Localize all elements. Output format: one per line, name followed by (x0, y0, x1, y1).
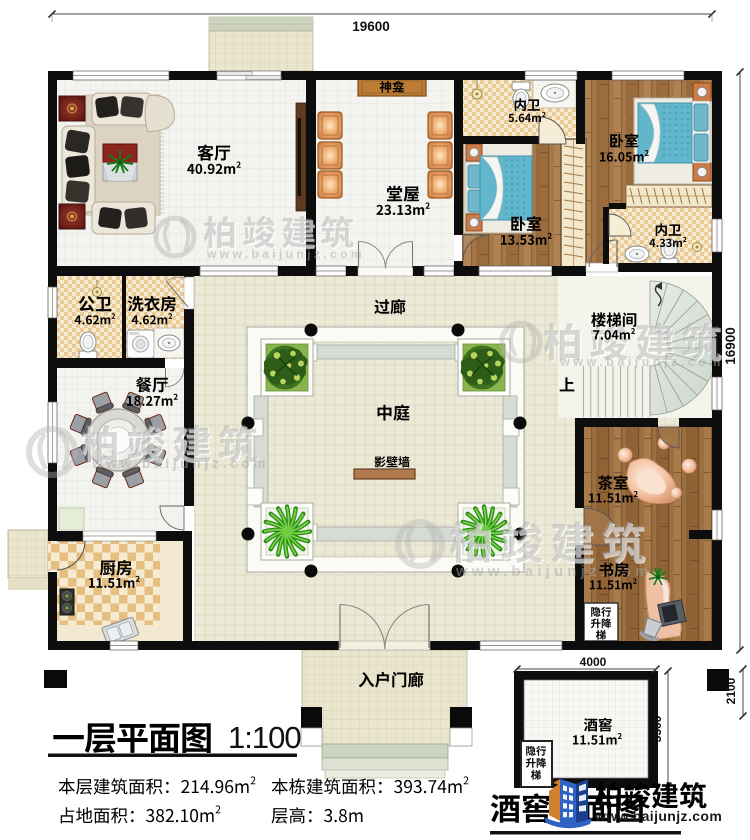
svg-text:www.baijunjz.com: www.baijunjz.com (594, 808, 722, 824)
svg-text:19600: 19600 (352, 19, 390, 34)
svg-text:4000: 4000 (580, 655, 607, 669)
svg-text:www.baijunjz.com: www.baijunjz.com (455, 563, 653, 580)
svg-text:www.baijunjz.com: www.baijunjz.com (91, 456, 269, 471)
svg-text:16900: 16900 (723, 327, 738, 365)
svg-text:1:100: 1:100 (228, 720, 301, 755)
svg-text:www.baijunjz.com: www.baijunjz.com (559, 355, 724, 369)
svg-text:www.baijunjz.com: www.baijunjz.com (206, 247, 365, 261)
svg-text:3300: 3300 (650, 715, 664, 742)
svg-text:2100: 2100 (724, 677, 738, 704)
